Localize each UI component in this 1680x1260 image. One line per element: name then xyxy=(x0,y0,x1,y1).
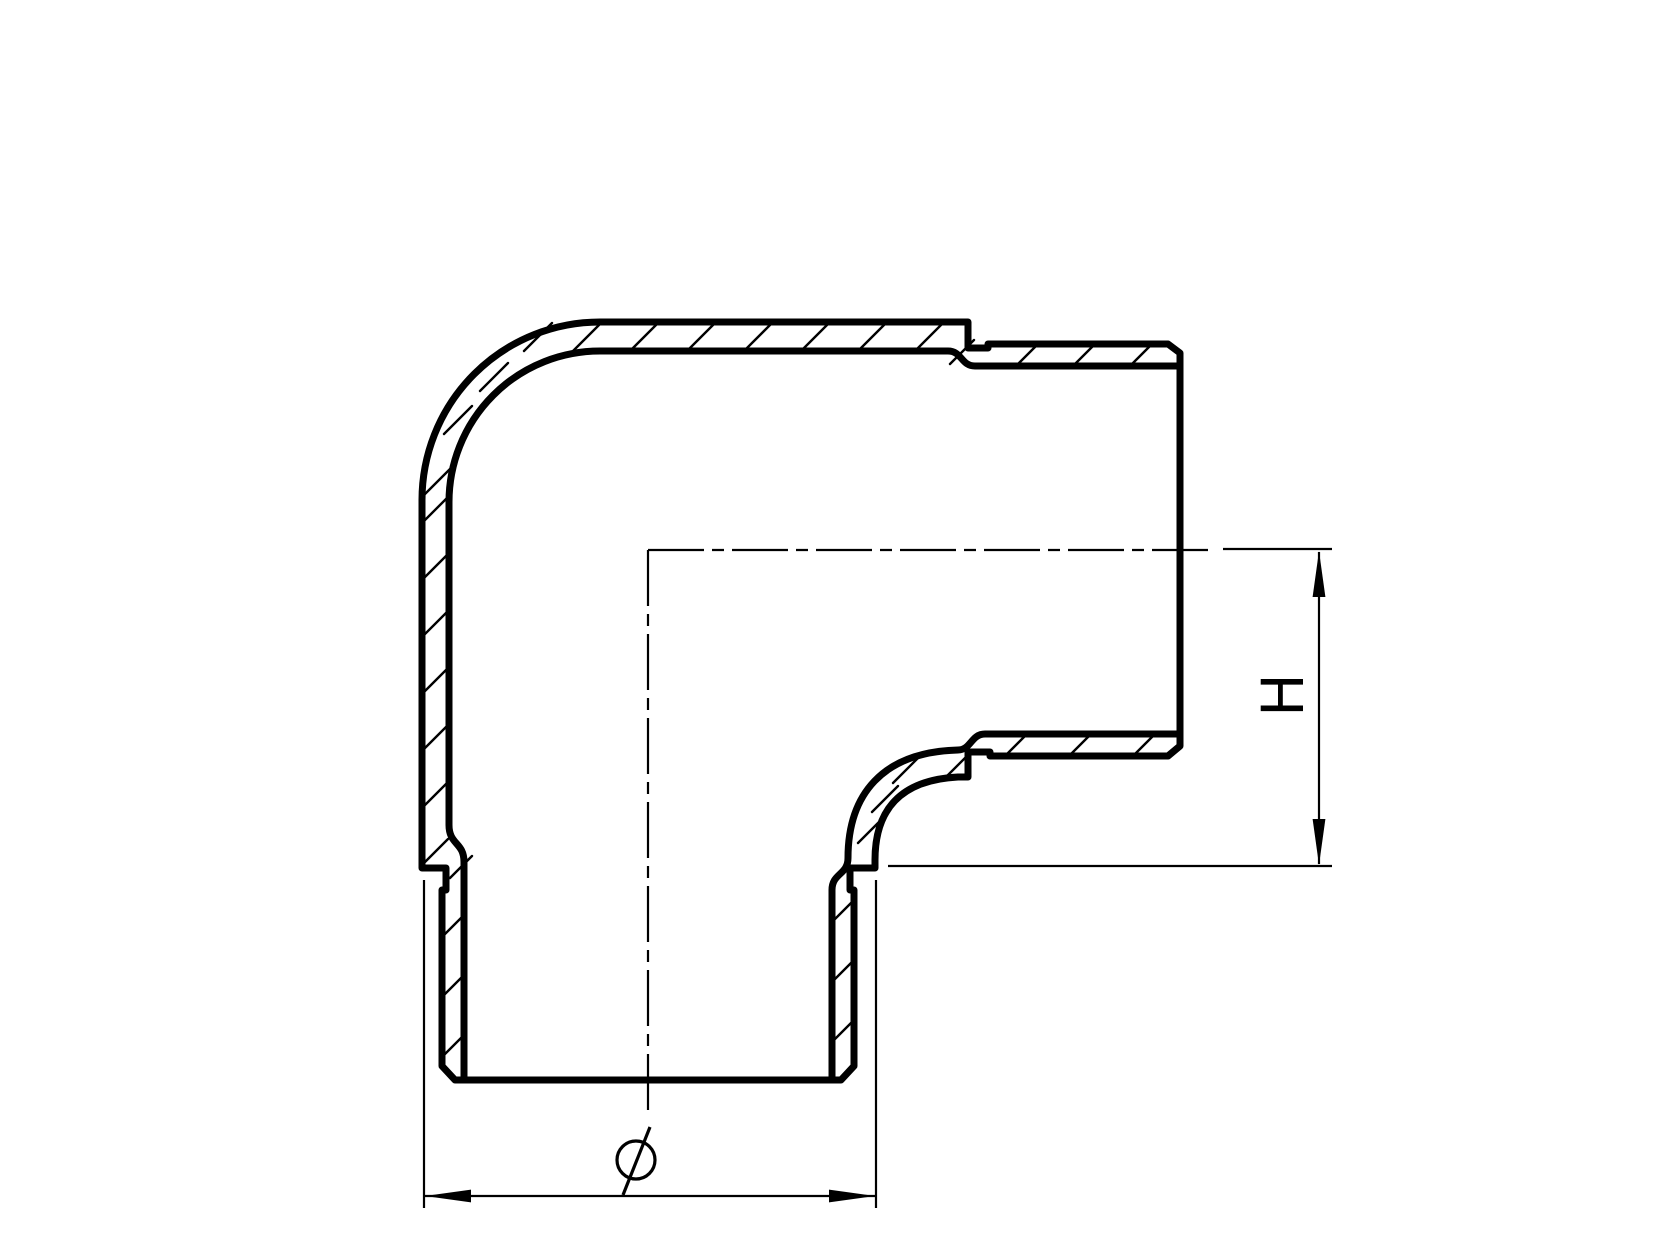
section-hatching xyxy=(422,322,1155,1057)
elbow-outline xyxy=(422,322,1180,1080)
centerlines xyxy=(648,550,1210,1110)
elbow-fitting-section-drawing: H xyxy=(0,0,1680,1260)
diameter-dimension xyxy=(424,880,876,1208)
height-dimension-label: H xyxy=(1249,673,1317,717)
diameter-arrow-right-icon xyxy=(829,1190,875,1203)
diameter-symbol-icon xyxy=(617,1127,655,1195)
diameter-extension-lines xyxy=(424,880,876,1208)
height-dimension: H xyxy=(888,549,1332,866)
height-arrow-up-icon xyxy=(1313,551,1326,597)
bore-line-top-arm xyxy=(449,351,1180,1080)
drawing-canvas: H xyxy=(0,0,1680,1260)
height-arrow-down-icon xyxy=(1313,819,1326,865)
bore-line-down-arm xyxy=(832,734,1180,1080)
diameter-arrow-left-icon xyxy=(425,1190,471,1203)
